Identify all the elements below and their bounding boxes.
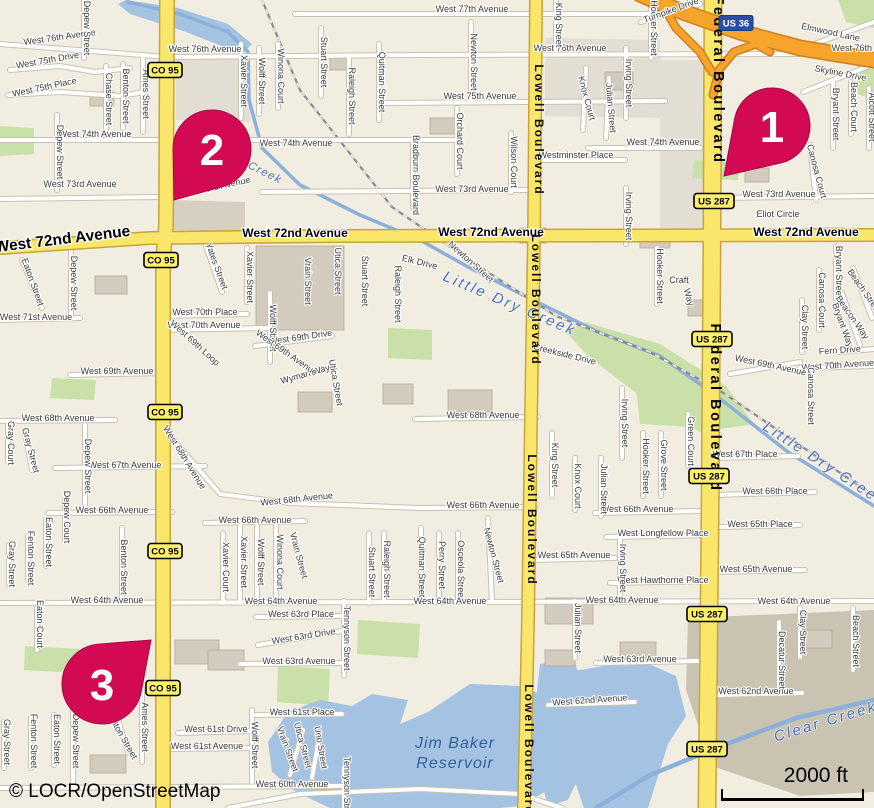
street-label: Depew Court [62,491,72,544]
street-label: Wolff Street [250,722,260,769]
street-label: Irving Street [618,544,628,593]
street-label: West 76th Avenue [534,43,607,53]
street-label: West 60th Avenue [256,779,329,789]
street-label: Xavier Street [245,251,255,304]
street-label: Depew Street [71,714,81,769]
street-label: West 64th Avenue [71,595,144,605]
street-label: Federal Boulevard [707,323,723,492]
street-label: Clay Street [798,610,808,655]
street-label: Green Court [686,416,696,466]
map-attribution: © LOCR/OpenStreetMap [9,781,220,803]
street-label: Westminster Place [539,150,614,160]
street-label: Canosa Street [806,367,816,425]
street-label: Julian Street [573,603,583,654]
park-area [636,388,710,428]
street-label: West 72nd Avenue [242,226,348,240]
street-label: Winona Court [276,48,286,104]
street-label: West 72nd Avenue [753,225,859,239]
street-label: West 64th Avenue [414,596,487,606]
route-shield-text: CO 95 [151,547,179,558]
street-label: Quitman Street [377,52,387,113]
route-shield: CO 95 [146,681,180,696]
street-label: Ames Street [140,702,150,752]
building [208,650,244,670]
street-label: West 66th Avenue [601,504,674,514]
street-label: West 61st Avenue [171,741,243,751]
street-label: Irving Street [624,192,634,241]
street-label: West 61st Drive [184,724,247,734]
street-label: West 70th Place [172,307,237,317]
street-label: Orchard Court [455,112,465,170]
street-label: West 63rd Avenue [262,656,335,666]
route-shield-text: CO 95 [151,66,179,77]
street-label: West 73rd Avenue [742,189,815,199]
street-label: West 63rd Avenue [603,654,676,664]
street-label: West 65th Place [727,519,792,529]
street-label: Gray Court [6,421,16,466]
route-shield: US 287 [687,607,727,622]
street-label: West Hawthorne Place [617,575,708,585]
motorway-shield: US 36 [719,16,753,31]
street-label: Bryant Street [834,246,844,299]
street-label: Xavier Street [239,536,249,589]
building [383,384,413,404]
park-area [50,378,96,400]
street-label: Lowell Boulevard [522,684,536,808]
street-label: West 74th Avenue [59,129,132,139]
street-label: West 74th Avenue [627,137,700,147]
street-label: Utica Street [333,247,343,295]
route-shield-text: US 287 [691,610,723,621]
street-label: Eaton Court [35,600,45,649]
route-shield-text: US 287 [698,197,730,208]
scale-bar-line [721,789,864,801]
minor-road [0,197,162,199]
building [298,392,332,412]
street-label: Raleigh Street [382,540,392,598]
park-area [357,620,420,658]
street-label: Osceola Street [456,540,466,600]
building [448,390,492,412]
street-label: West 64th Avenue [245,596,318,606]
street-label: West 64th Avenue [586,595,659,605]
street-label: Fenton Street [29,714,39,769]
route-shield-text: US 287 [693,472,725,483]
route-shield-text: US 287 [691,745,723,756]
building [95,276,127,294]
street-label: Alcott Street [867,92,874,142]
street-label: West 65th Avenue [720,564,793,574]
street-label: Quitman Street [417,537,427,598]
street-label: West 65th Avenue [538,550,611,560]
street-label: Wilson Court [509,136,519,188]
street-label: West 63rd Place [268,609,334,619]
street-label: Raleigh Street [393,265,403,323]
street-label: Depew Street [69,256,79,311]
street-label: West 64th Avenue [758,596,831,606]
street-label: Julian Street [599,464,609,515]
street-label: Hooker Street [655,248,665,304]
commercial-area [172,200,245,232]
street-label: Hooker Street [649,0,659,56]
street-label: Lowell Boulevard [525,454,539,585]
street-label: Tennyson Street [342,756,352,808]
map-marker-number[interactable]: 1 [760,103,784,152]
street-label: Bradburn Boulevard [411,135,421,215]
map-canvas: West 77th AvenueWest 76th AvenueWest 76t… [0,0,874,808]
street-label: Stuart Street [319,37,329,88]
street-label: Xavier Court [221,542,231,593]
building [545,650,575,666]
street-label: Depew Street [82,1,92,56]
street-label: Knox Court [573,463,583,509]
street-label: Depew Street [83,439,93,494]
street-label: West 61st Place [270,707,335,717]
street-label: Xavier Street [239,55,249,108]
street-label: West 69th Avenue [81,366,154,376]
street-label: Beach Court [849,82,859,133]
street-label: Beach Street [851,615,861,668]
street-label: Fenton Street [26,531,36,586]
street-label: Lowell Boulevard [529,234,543,365]
route-shield: US 287 [687,742,727,757]
street-label: Reservoir [416,755,493,772]
street-label: Vrain Street [303,257,313,305]
street-label: Eliot Circle [756,209,799,219]
street-label: Irving Street [620,399,630,448]
street-label: Eaton Street [44,517,54,568]
route-shield: US 287 [692,332,732,347]
street-label: Gray Street [2,719,12,766]
route-shield: CO 95 [148,544,182,559]
street-label: West 67th Avenue [89,460,162,470]
street-label: West 76th Avenue [832,43,874,53]
street-label: Winona Court [275,534,285,590]
street-label: Newton Street [469,33,479,91]
street-label: King Street [554,3,564,48]
scale-bar: 2000 ft [714,764,864,801]
map-marker-number[interactable]: 2 [200,126,224,175]
scale-bar-label: 2000 ft [714,764,864,788]
street-label: West Longfellow Place [618,528,709,538]
street-label: Eaton Street [52,714,62,765]
route-shield-text: CO 95 [147,256,175,267]
street-label: Canosa Court [817,272,827,328]
route-shield-text: US 287 [696,335,728,346]
route-shield: US 287 [694,194,734,209]
street-label: West 76th Avenue [169,44,242,54]
route-shield: CO 95 [144,253,178,268]
street-label: West 71st Avenue [0,312,72,322]
route-shield-text: CO 95 [151,408,179,419]
street-label: Clay Street [800,305,810,350]
minor-road [385,101,665,103]
street-label: West 68th Avenue [447,410,520,420]
street-label: Wolff Street [257,58,267,105]
street-label: West 77th Avenue [436,4,509,14]
street-label: West 66th Avenue [219,515,292,525]
street-label: Stuart Street [367,547,377,598]
street-label: Benton Street [119,539,129,595]
street-label: Chase Street [104,73,114,126]
street-label: Raleigh Street [347,67,357,125]
street-label: West 74th Avenue [260,138,333,148]
park-area [388,328,432,360]
street-label: West 66th Avenue [447,500,520,510]
street-label: Jim Baker [414,735,495,752]
map-viewport[interactable]: West 77th AvenueWest 76th AvenueWest 76t… [0,0,874,808]
route-shield: CO 95 [148,405,182,420]
map-marker-number[interactable]: 3 [90,661,114,710]
street-label: Depew Street [55,125,65,180]
street-label: West 72nd Avenue [438,225,544,239]
route-shield-text: CO 95 [149,684,177,695]
motorway-shield-text: US 36 [723,19,749,30]
street-label: Wolff Street [256,539,266,586]
building [430,118,456,134]
street-label: West 66th Place [742,486,807,496]
building [90,755,126,773]
street-label: Hooker Street [641,438,651,494]
street-label: West 75th Avenue [444,91,517,101]
street-label: Irving Street [624,59,634,108]
street-label: West 68th Avenue [22,413,95,423]
street-label: Stuart Street [360,256,370,307]
street-label: Lowell Boulevard [532,64,546,195]
street-label: West 66th Avenue [76,505,149,515]
street-label: Bryant Street [831,88,841,141]
park-area [277,666,330,706]
street-label: Perry Street [437,541,447,590]
street-label: West 73rd Avenue [43,179,116,189]
street-label: Gray Street [7,541,17,588]
street-label: Craft [669,275,689,285]
street-label: Decatur Street [777,631,787,690]
street-label: King Street [550,443,560,488]
route-shield: US 287 [689,469,729,484]
street-label: Grove Street [659,439,669,491]
street-label: West 73rd Avenue [435,184,508,194]
route-shield: CO 95 [148,63,182,78]
street-label: Tennyson Street [342,605,352,671]
street-label: Benton Street [121,68,131,124]
